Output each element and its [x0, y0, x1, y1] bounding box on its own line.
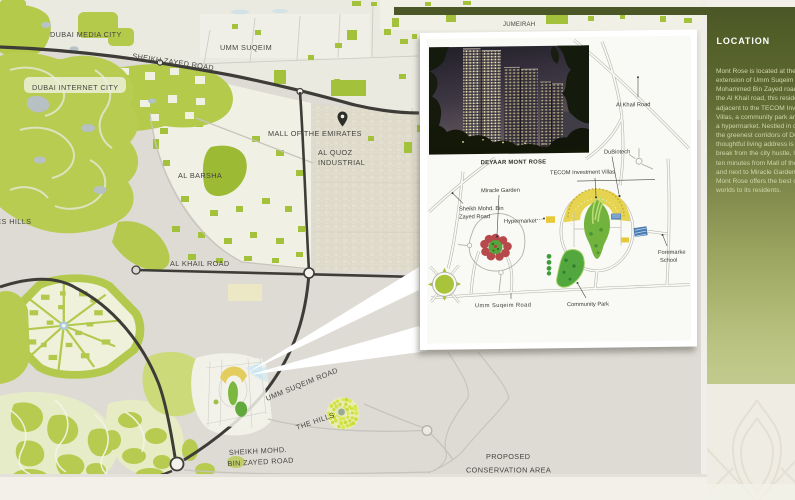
svg-text:DUBAI MEDIA CITY: DUBAI MEDIA CITY — [50, 30, 122, 39]
svg-text:AL QUOZ: AL QUOZ — [318, 148, 353, 157]
svg-text:JUMEIRAH: JUMEIRAH — [503, 22, 535, 28]
svg-text:Miracle Garden: Miracle Garden — [480, 188, 519, 194]
svg-text:School: School — [659, 258, 676, 264]
svg-text:Umm Suqeim Road: Umm Suqeim Road — [474, 303, 530, 310]
svg-text:AL KHAIL ROAD: AL KHAIL ROAD — [170, 259, 230, 268]
svg-text:CONSERVATION AREA: CONSERVATION AREA — [466, 466, 551, 475]
svg-text:Sheikh Mohd. Bin: Sheikh Mohd. Bin — [458, 206, 503, 213]
svg-text:DUBAI INTERNET CITY: DUBAI INTERNET CITY — [32, 83, 119, 92]
svg-text:MALL OF THE EMIRATES: MALL OF THE EMIRATES — [268, 129, 362, 138]
svg-text:PROPOSED: PROPOSED — [486, 452, 530, 461]
svg-text:EMIRATES HILLS: EMIRATES HILLS — [0, 217, 31, 226]
svg-text:UMM SUQEIM: UMM SUQEIM — [220, 43, 272, 52]
svg-text:Foremarke: Foremarke — [657, 250, 684, 256]
svg-text:DuBiotech: DuBiotech — [603, 149, 629, 155]
svg-text:Community Park: Community Park — [566, 302, 608, 309]
svg-text:INDUSTRIAL: INDUSTRIAL — [318, 158, 365, 167]
svg-text:Zayed Road: Zayed Road — [458, 214, 489, 220]
svg-text:AL BARSHA: AL BARSHA — [178, 171, 222, 180]
svg-text:Hypermarket: Hypermarket — [503, 219, 536, 225]
svg-text:TECOM Investment Villas: TECOM Investment Villas — [549, 170, 614, 177]
svg-text:DEYAAR MONT ROSE: DEYAAR MONT ROSE — [480, 159, 546, 166]
svg-text:Al Khail Road: Al Khail Road — [615, 102, 649, 108]
